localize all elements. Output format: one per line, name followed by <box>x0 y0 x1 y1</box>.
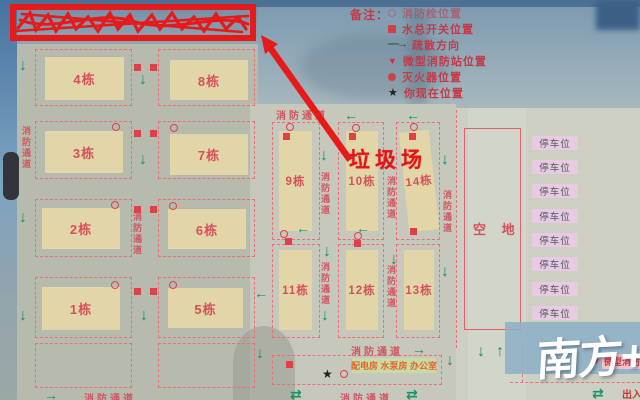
legend-row: 你现在位置 <box>388 86 487 99</box>
fire-hydrant-marker <box>352 124 360 132</box>
evacuation-arrow-icon <box>256 346 264 362</box>
building-12: 12栋 <box>346 250 378 330</box>
evacuation-arrow-icon <box>412 342 426 358</box>
mini-fire-station-icon <box>388 56 397 66</box>
water-main-switch-marker <box>150 130 157 137</box>
evacuation-arrow-icon <box>139 152 147 168</box>
fire-hydrant-marker <box>111 281 119 289</box>
redacted-title-scribble <box>10 4 256 41</box>
building-7: 7栋 <box>170 134 248 175</box>
fire-lane-label: 消防通道 <box>319 172 330 216</box>
building-9: 9栋 <box>279 131 312 231</box>
entrance-exit-label: 出入 <box>622 386 640 400</box>
water-main-switch-marker <box>354 240 361 247</box>
garbage-dump-label: 垃圾场 <box>349 144 427 174</box>
corner-shadow <box>596 0 640 30</box>
fire-lane-label: 消防通道 <box>20 126 31 170</box>
parking-space: 停车位 <box>532 160 578 174</box>
water-main-switch-marker <box>150 64 157 71</box>
parking-space: 停车位 <box>532 282 578 296</box>
parking-space: 停车位 <box>532 136 578 150</box>
fire-lane-label: 消防通道 <box>319 262 330 306</box>
legend-label: 你现在位置 <box>404 85 464 101</box>
you-are-here-marker <box>322 367 333 381</box>
building-4: 4栋 <box>45 57 124 100</box>
water-main-switch-marker <box>286 361 293 368</box>
legend-row: 消防栓位置 <box>388 6 487 19</box>
evacuation-arrow-icon <box>44 388 58 400</box>
fire-lane-label: 消防通道 <box>276 107 328 122</box>
building-13: 13栋 <box>404 250 434 330</box>
yard-boundary <box>35 343 132 388</box>
parking-space: 停车位 <box>532 306 578 320</box>
parking-space: 停车位 <box>532 209 578 223</box>
evacuation-arrow-icon <box>296 221 310 237</box>
legend-label: 消防栓位置 <box>402 5 462 21</box>
building-11: 11栋 <box>279 250 312 330</box>
evacuation-arrow-icon <box>323 244 331 260</box>
parking-space: 停车位 <box>532 184 578 198</box>
evacuation-arrow-icon <box>19 210 27 226</box>
foreground-object <box>3 152 19 200</box>
fire-lane-label: 消防通道 <box>131 212 142 256</box>
water-main-switch-marker <box>134 206 141 213</box>
evacuation-arrow-icon <box>446 353 454 369</box>
lane-boundary-line <box>456 110 457 348</box>
legend-row: 水总开关位置 <box>388 22 487 35</box>
water-main-switch-marker <box>410 228 417 235</box>
building-1: 1栋 <box>42 287 120 330</box>
yard-boundary <box>158 343 255 388</box>
evacuation-arrow-icon <box>390 252 398 268</box>
fire-lane-label: 消防通道 <box>441 190 452 234</box>
fire-lane-label: 消防通道 <box>385 176 396 220</box>
evacuation-arrow-icon <box>592 386 604 400</box>
fire-lane-label: 消防通道 <box>84 390 136 400</box>
water-main-switch-marker <box>134 130 141 137</box>
evacuation-arrow-icon <box>344 108 358 124</box>
water-main-switch-marker <box>349 133 356 140</box>
parking-space: 停车位 <box>532 257 578 271</box>
parking-space: 停车位 <box>532 233 578 247</box>
fire-hydrant-marker <box>410 123 418 131</box>
evacuation-map-photo: 备注： 消防栓位置 水总开关位置 疏散方向 微型消防站位置 灭火器位置 你现在位… <box>0 0 640 400</box>
legend-row: 灭火器位置 <box>388 70 487 83</box>
scribble-strokes <box>16 10 250 35</box>
building-5: 5栋 <box>168 288 243 328</box>
legend: 消防栓位置 水总开关位置 疏散方向 微型消防站位置 灭火器位置 你现在位置 <box>388 6 487 99</box>
water-main-switch-marker <box>134 288 141 295</box>
water-main-switch-marker <box>409 133 416 140</box>
building-8: 8栋 <box>170 60 248 100</box>
evacuation-arrow-icon <box>441 152 449 168</box>
fire-hydrant-marker <box>286 123 294 131</box>
water-main-switch-icon <box>388 25 396 33</box>
fire-hydrant-icon <box>388 9 396 17</box>
water-main-switch-marker <box>134 64 141 71</box>
building-2: 2栋 <box>42 208 120 249</box>
evacuation-arrow-icon <box>406 387 418 400</box>
evacuation-arrow-icon <box>290 387 302 400</box>
legend-row: 疏散方向 <box>388 38 487 51</box>
evacuation-arrow-icon <box>321 308 329 324</box>
water-main-switch-marker <box>150 206 157 213</box>
evacuation-arrow-icon <box>19 308 27 324</box>
evacuation-arrow-icon <box>320 148 328 164</box>
evacuation-direction-icon <box>388 40 406 49</box>
evacuation-arrow-icon <box>19 58 27 74</box>
legend-row: 微型消防站位置 <box>388 54 487 67</box>
frame-edge <box>0 0 17 400</box>
legend-label: 疏散方向 <box>412 37 460 53</box>
legend-label: 灭火器位置 <box>402 69 462 85</box>
fire-lane-label: 消防通道 <box>385 265 396 309</box>
evacuation-arrow-icon <box>477 344 485 360</box>
water-main-switch-marker <box>283 133 290 140</box>
fire-hydrant-marker <box>169 281 177 289</box>
nanfang-plus-watermark: 南方+ <box>535 319 640 389</box>
legend-label: 微型消防站位置 <box>403 53 487 69</box>
fire-hydrant-marker <box>280 230 288 238</box>
building-3: 3栋 <box>45 131 123 173</box>
facility-rooms-label: 配电房 水泵房 办公室 <box>352 358 436 373</box>
evacuation-arrow-icon <box>140 308 148 324</box>
fire-extinguisher-icon <box>388 73 396 81</box>
fire-hydrant-marker <box>111 201 119 209</box>
water-main-switch-marker <box>285 238 292 245</box>
evacuation-arrow-icon <box>254 286 268 302</box>
fire-hydrant-marker <box>112 123 120 131</box>
fire-hydrant-marker <box>169 202 177 210</box>
fire-lane-label: 消防通道 <box>351 343 403 358</box>
fire-hydrant-marker <box>354 232 362 240</box>
fire-hydrant-marker <box>340 370 348 378</box>
building-6: 6栋 <box>168 209 246 249</box>
evacuation-arrow-icon <box>441 264 449 280</box>
evacuation-arrow-icon <box>496 344 504 360</box>
evacuation-arrow-icon <box>139 72 147 88</box>
water-main-switch-marker <box>150 288 157 295</box>
empty-lot-label: 空 地 <box>473 219 521 238</box>
evacuation-arrow-icon <box>406 108 420 124</box>
you-are-here-icon <box>388 86 398 99</box>
legend-title: 备注： <box>350 6 389 23</box>
legend-label: 水总开关位置 <box>402 21 474 37</box>
fire-lane-label: 消防通道 <box>340 390 392 400</box>
fire-hydrant-marker <box>170 124 178 132</box>
